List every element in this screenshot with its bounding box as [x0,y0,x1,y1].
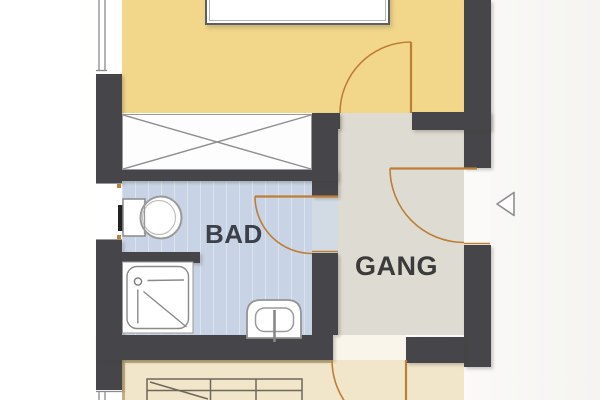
door-bathroom [255,197,338,254]
door-entry [390,169,490,244]
plan-overlay [0,0,600,400]
washbasin-icon [247,300,301,342]
room-label-hallway: GANG [355,253,438,280]
room-label-bathroom: BAD [205,221,263,247]
toilet-icon [118,197,182,239]
entrance-arrow-icon [497,193,514,216]
sofa-icon [147,379,302,400]
window-frame-lines [96,0,122,400]
wardrobe-x-icon [123,115,311,169]
door-bedroom [340,42,411,113]
floor-plan: BAD GANG [0,0,600,400]
shower-icon [123,262,194,333]
door-bottom-room [332,360,406,400]
